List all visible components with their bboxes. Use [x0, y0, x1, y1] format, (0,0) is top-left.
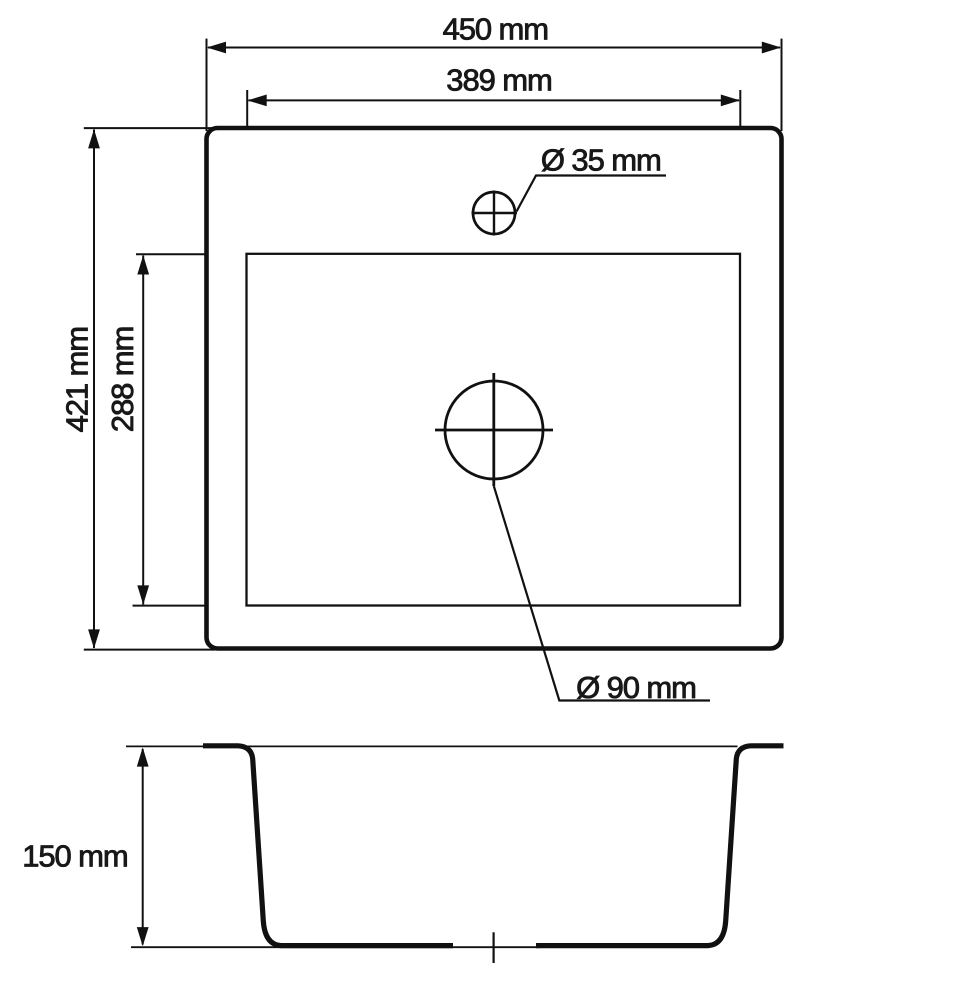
svg-text:Ø 90 mm: Ø 90 mm [576, 670, 696, 705]
svg-text:Ø 35 mm: Ø 35 mm [541, 143, 661, 178]
svg-text:421 mm: 421 mm [60, 327, 95, 432]
svg-text:450 mm: 450 mm [443, 12, 548, 47]
svg-text:150 mm: 150 mm [22, 839, 127, 874]
svg-text:288 mm: 288 mm [105, 327, 140, 432]
svg-text:389 mm: 389 mm [446, 63, 551, 98]
